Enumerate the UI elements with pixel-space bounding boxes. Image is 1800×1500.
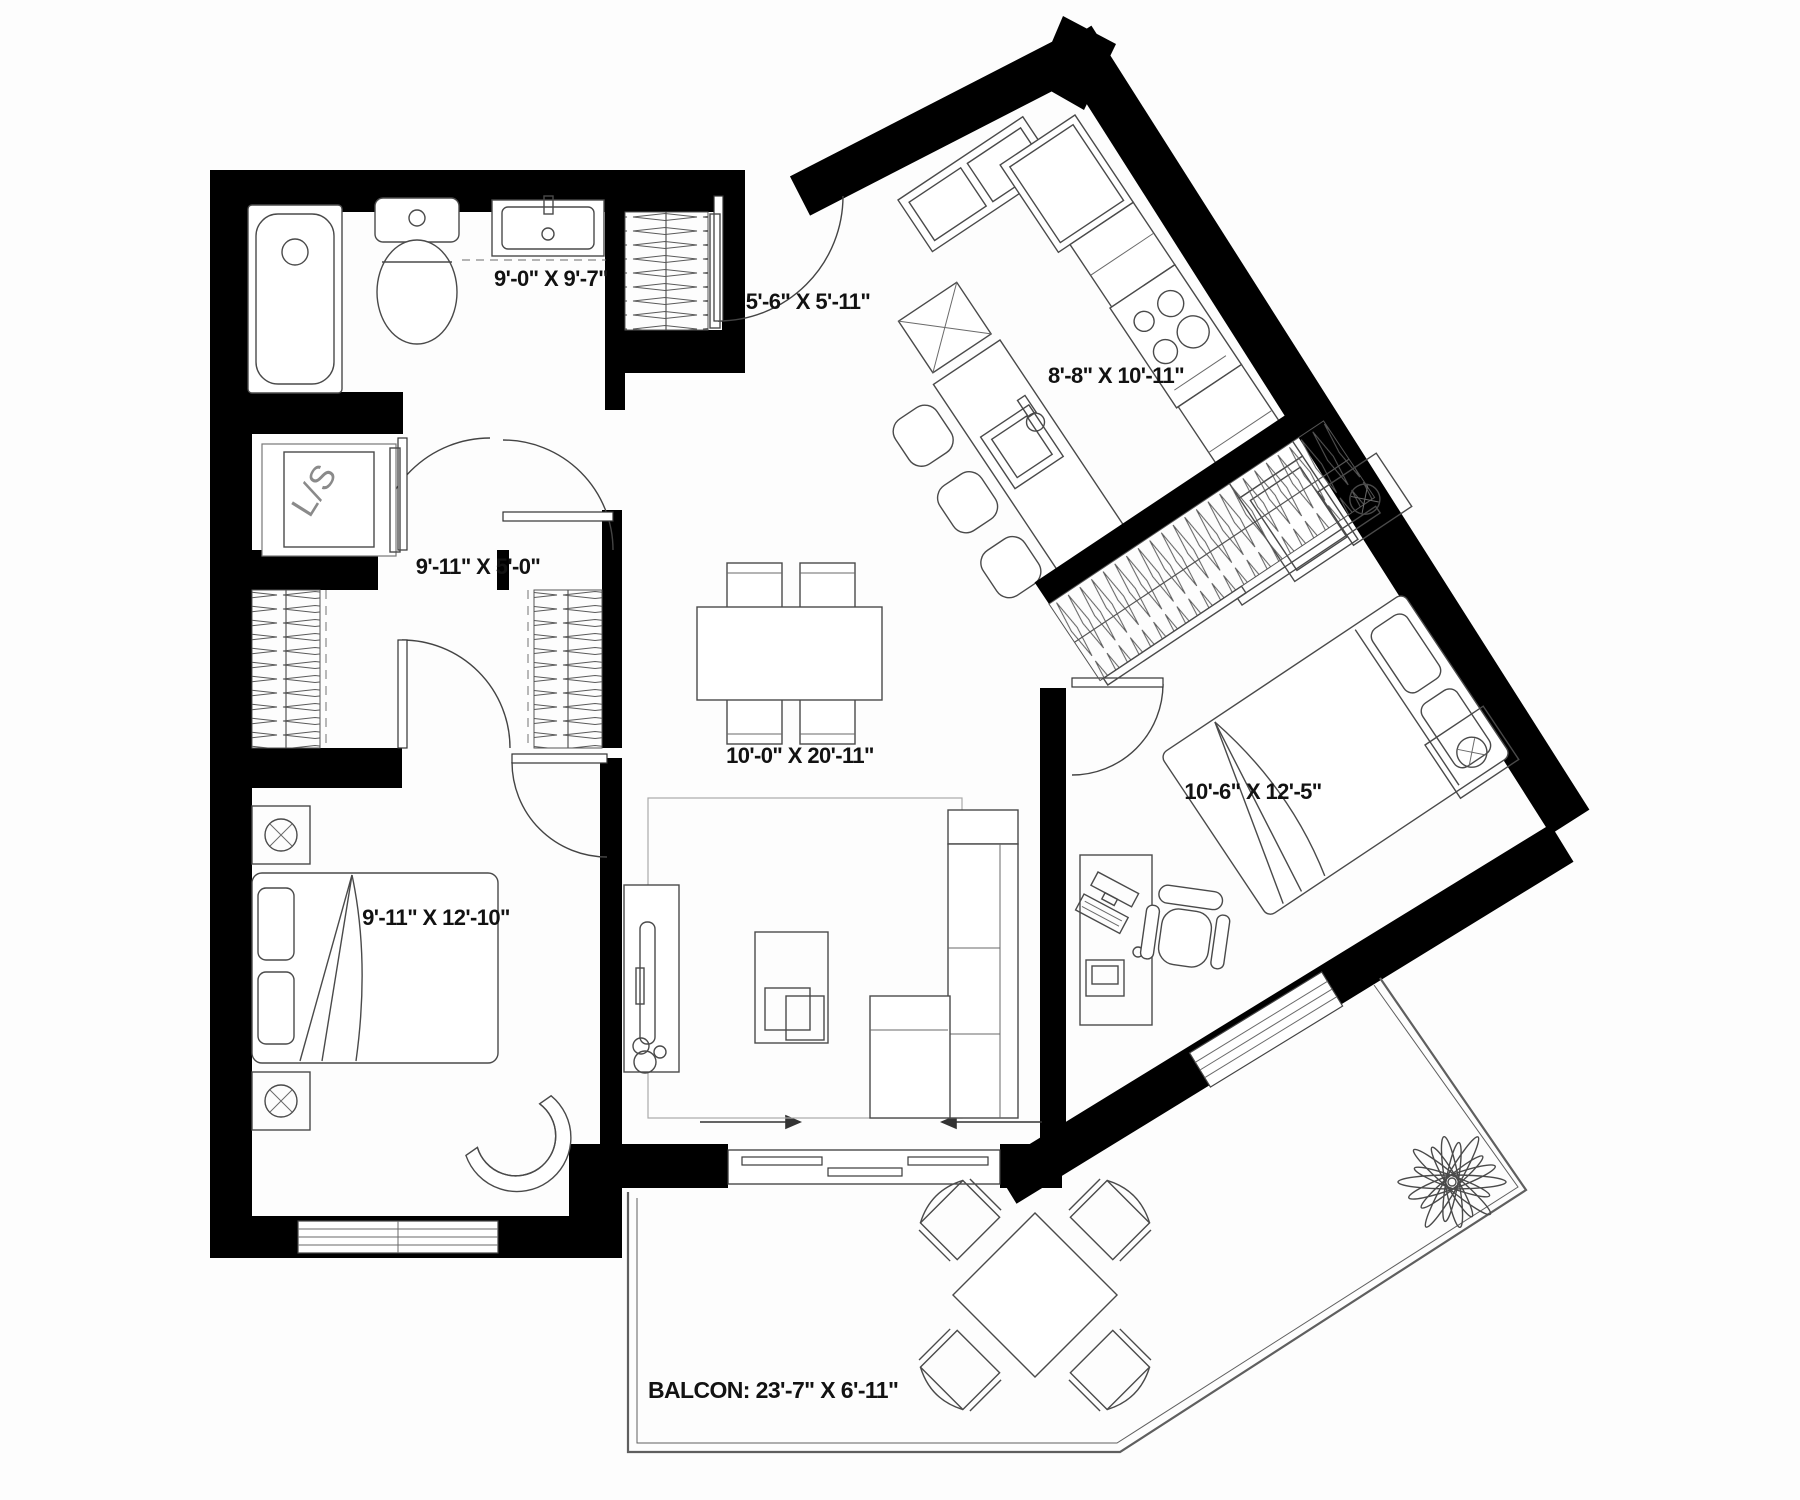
entry-dimension-label: 5'-6" X 5'-11" [746,289,870,314]
wall-bathroom-right [605,212,625,410]
dining-chair-icon [800,698,855,744]
wall-living-bottom-left [569,1144,728,1188]
dining-chair-icon [727,563,782,609]
kitchen-dimension-label: 8'-8" X 10'-11" [1048,363,1184,388]
bathroom-dimension-label: 9'-0" X 9'-7" [494,266,608,291]
window-bedroom-left [298,1221,498,1253]
closet-right-icon [528,590,602,748]
wall-living-bottom-right [1000,1144,1062,1188]
dining-chair-icon [800,563,855,609]
hallway-dimension-label: 9'-11" X 5'-0" [416,554,540,579]
dining-chair-icon [727,698,782,744]
bed-icon [252,873,498,1063]
wall-entry-closet-right [722,212,745,373]
balcony-dimension-label: BALCON: 23'-7" X 6'-11" [648,1377,898,1403]
dining-table-icon [697,607,882,700]
living-dimension-label: 10'-0" X 20'-11" [726,743,874,768]
laundry-storage: L/S [262,444,400,556]
wall-living-bedroom-divider [1040,688,1066,1146]
sliding-door[interactable] [728,1150,1000,1184]
closet-left-icon [252,590,326,748]
wall-under-entry-closet [620,330,722,373]
floor-plan: 9'-0" X 9'-7" L/S 9'-11" X 5'-0" [0,0,1800,1500]
wall-hallway-right [602,510,622,748]
bathtub-icon [248,205,342,393]
wall-bathroom-bottom [252,392,403,434]
wall-bedroom-left-top [252,748,402,788]
entry-closet-icon [625,212,720,330]
wall-bedroom-left-right [600,758,622,1218]
bedroom-right-dimension-label: 10'-6" X 12'-5" [1184,779,1321,804]
toilet-icon [375,198,459,344]
wall-left [210,170,252,1258]
bedroom-left-dimension-label: 9'-11" X 12'-10" [362,905,510,930]
floor-plan-page: 9'-0" X 9'-7" L/S 9'-11" X 5'-0" [0,0,1800,1500]
tv-console-icon [624,885,679,1073]
